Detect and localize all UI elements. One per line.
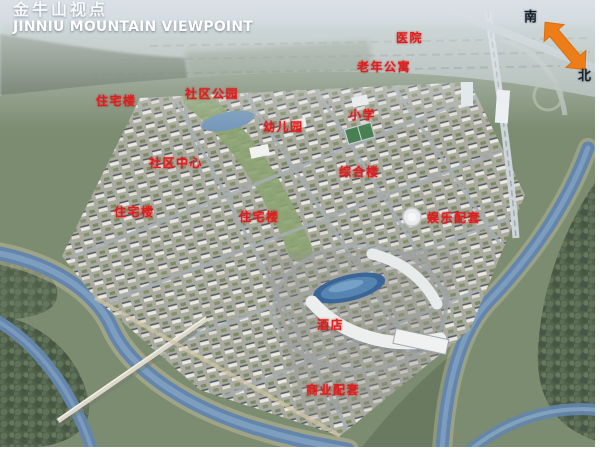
map-labels-layer: 医院老年公寓社区公园住宅楼小学幼儿园社区中心综合楼住宅楼住宅楼娱乐配套酒店商业配…	[0, 0, 600, 450]
map-label-hospital: 医院	[396, 32, 423, 44]
map-label-commercial-facilities: 商业配套	[306, 384, 360, 396]
map-label-entertainment-facilities: 娱乐配套	[427, 212, 481, 224]
map-label-residential-center: 住宅楼	[239, 211, 280, 223]
map-label-elderly-apartments: 老年公寓	[357, 61, 411, 73]
compass-south-label: 南	[524, 11, 537, 24]
map-label-residential-upper-left: 住宅楼	[96, 95, 137, 107]
map-label-kindergarten: 幼儿园	[263, 121, 304, 133]
map-label-community-park: 社区公园	[185, 88, 239, 100]
map-label-primary-school: 小学	[349, 109, 376, 121]
map-label-complex-building: 综合楼	[339, 166, 380, 178]
compass-north-label: 北	[578, 70, 591, 83]
map-label-residential-lower-left: 住宅楼	[114, 206, 155, 218]
map-label-hotel: 酒店	[317, 319, 344, 331]
aerial-site-plan: 金牛山视点 JINNIU MOUNTAIN VIEWPOINT 医院老年公寓社区…	[0, 0, 600, 450]
map-label-community-center: 社区中心	[149, 157, 203, 169]
